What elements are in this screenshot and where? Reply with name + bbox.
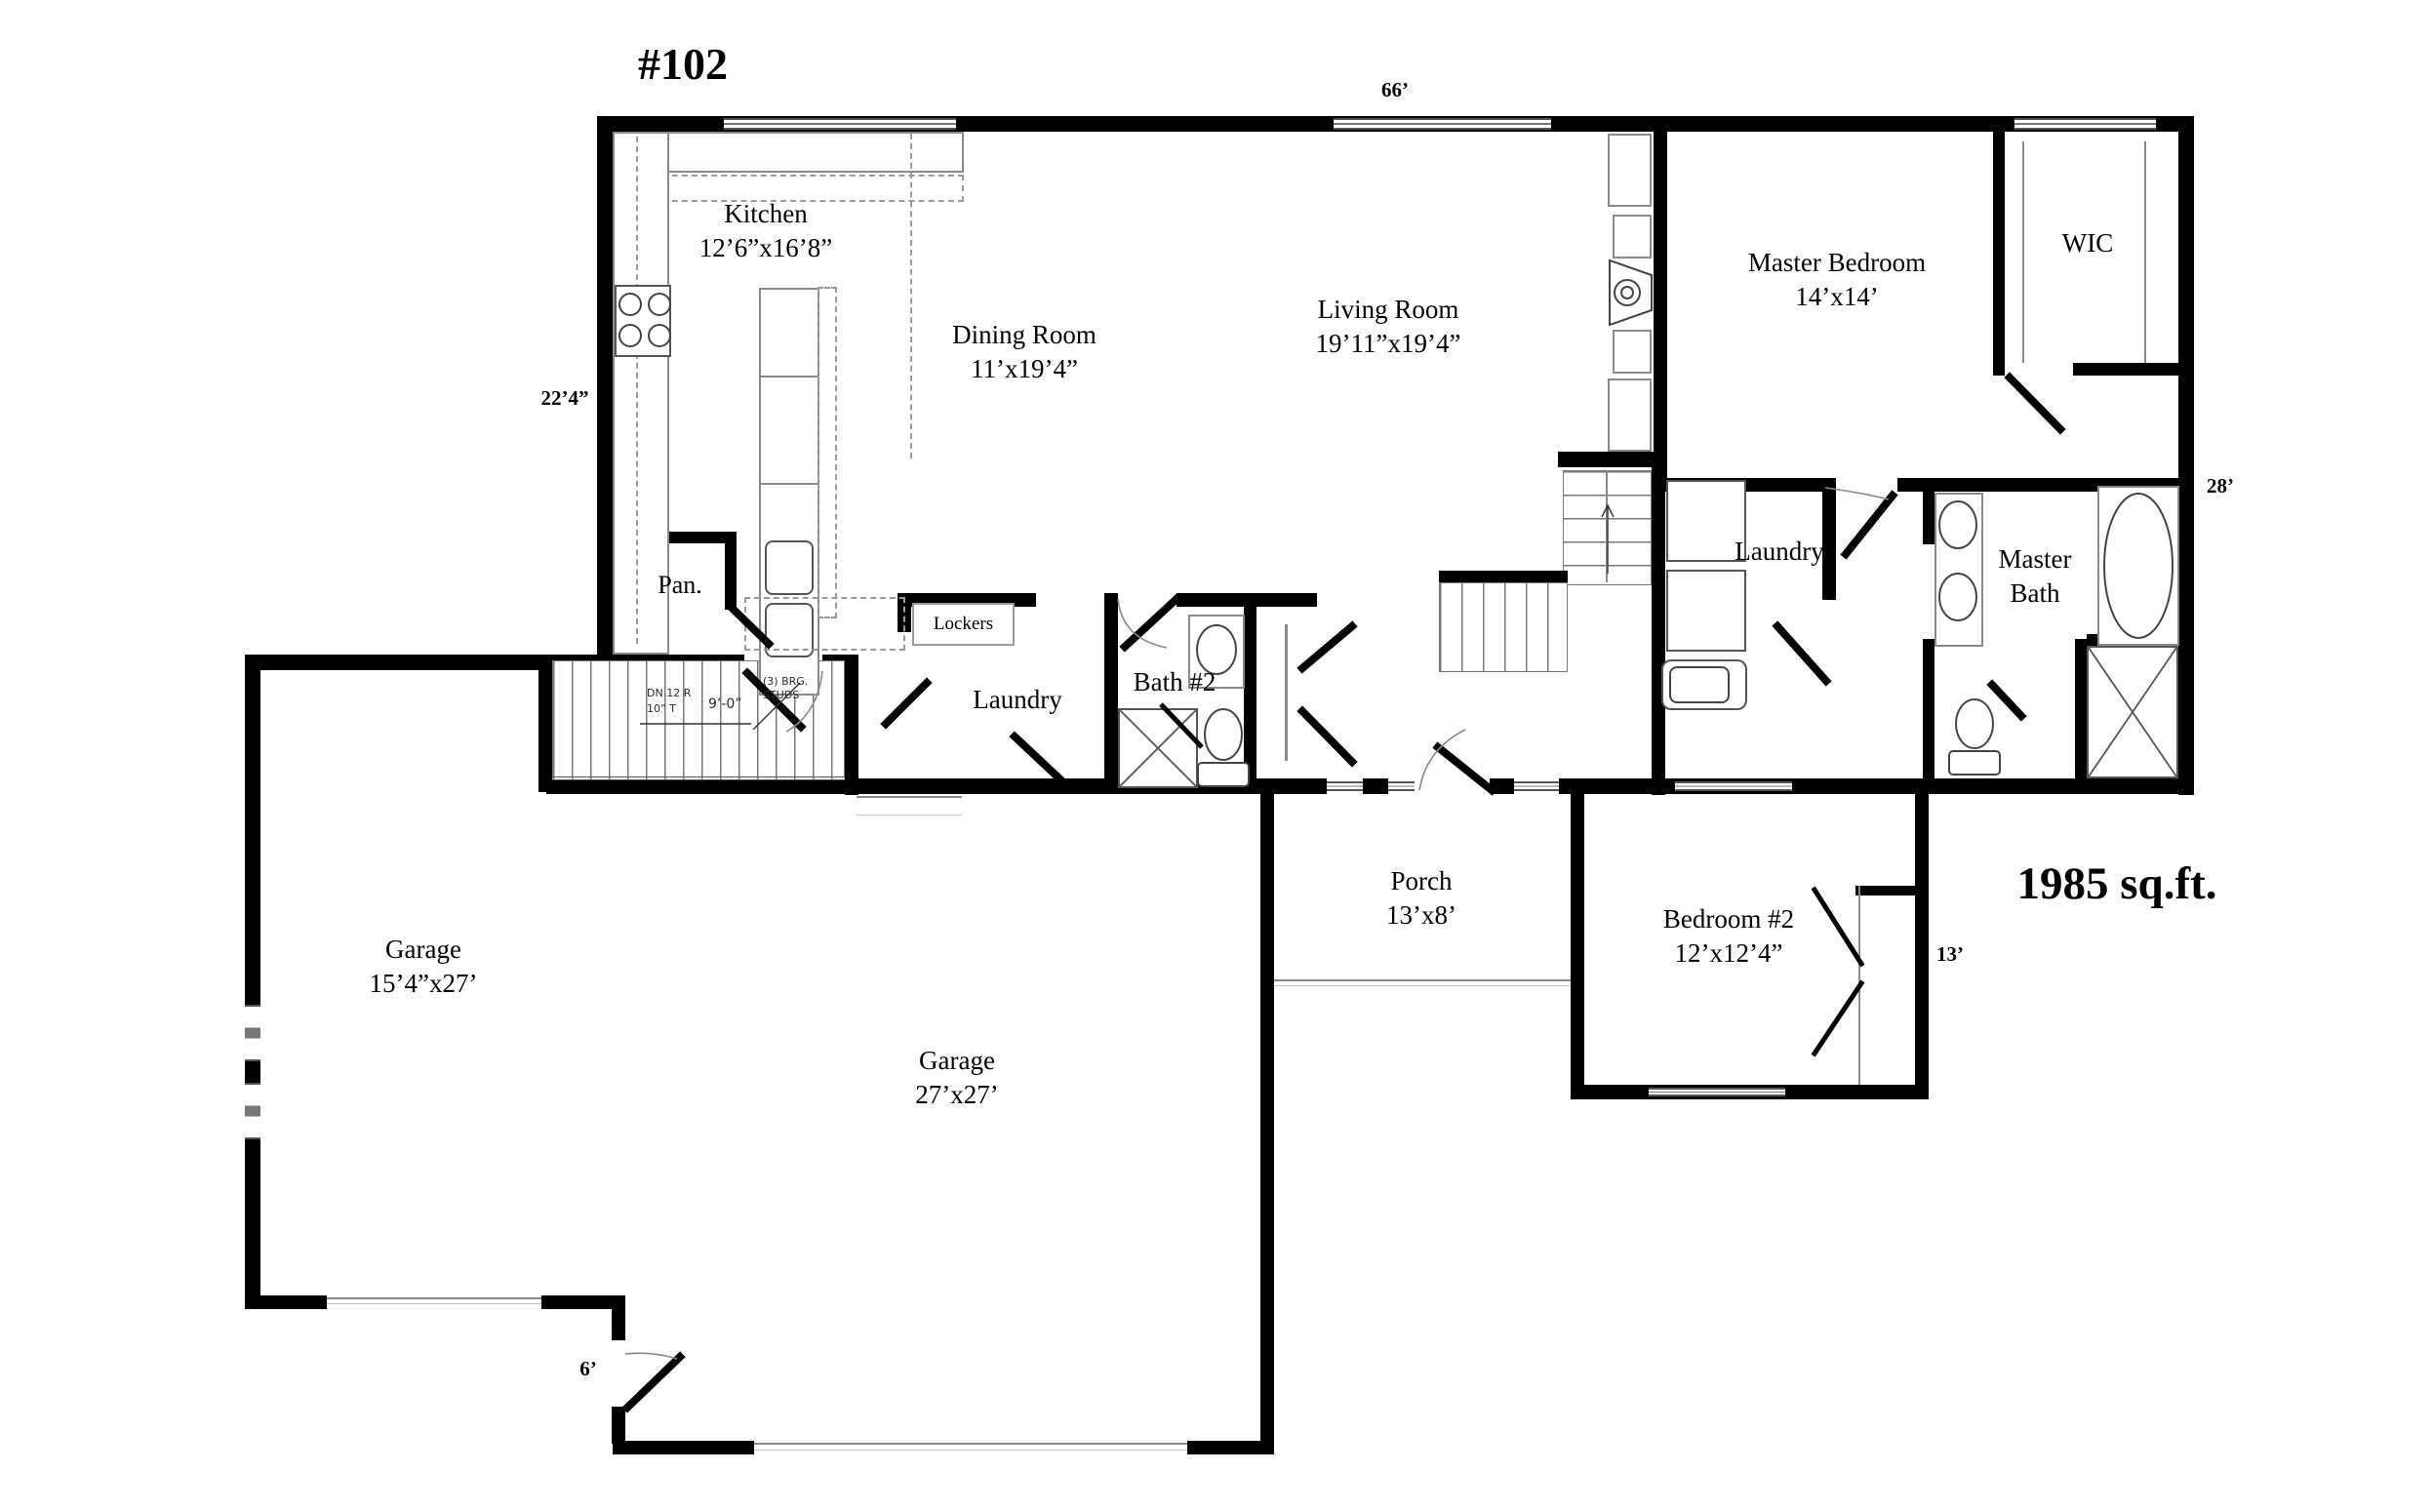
room-name: Bath: [1999, 577, 2072, 611]
wall: [1923, 491, 1934, 544]
wall: [1915, 778, 2192, 794]
builtin-cabinet: [1608, 134, 1652, 207]
room-dims: 11’x19’4”: [952, 352, 1097, 386]
wall: [1822, 478, 1836, 600]
stair-note-tread: 10” T: [647, 702, 676, 715]
wall: [2178, 116, 2194, 795]
room-name: WIC: [2062, 226, 2113, 260]
wall: [1855, 886, 1915, 895]
room-dims: 14’x14’: [1748, 280, 1926, 314]
room-name: Porch: [1386, 864, 1456, 898]
room-dims: 27’x27’: [915, 1078, 998, 1112]
room-name: Garage: [370, 933, 478, 967]
bedroom2-door-leaf: [1302, 711, 1352, 762]
stair-stringer-line: [1606, 470, 1608, 582]
wc-door-leaf: [1992, 685, 2021, 716]
shower-bath2: [1118, 708, 1198, 788]
room-dims: 12’x12’4”: [1663, 936, 1794, 971]
wall: [1244, 607, 1256, 792]
wall: [245, 655, 260, 1308]
wall: [541, 1295, 625, 1309]
shower-glass: [1120, 648, 2176, 786]
room-label-garage-main: Garage 27’x27’: [915, 1044, 998, 1112]
bath2-door-arc: [1118, 599, 1167, 648]
dim-left-depth: 22’4”: [541, 386, 589, 411]
builtin-cabinet: [1613, 330, 1652, 374]
room-label-master-bath: Master Bath: [1999, 542, 2072, 611]
garage-door-opening: [327, 1297, 541, 1304]
laundry-upper-door-leaf: [1777, 626, 1826, 681]
wall: [1923, 639, 1934, 778]
room-name: Laundry: [1735, 535, 1823, 569]
island-divider-line: [760, 483, 818, 485]
tv-niche-ring: [1621, 287, 1633, 298]
window: [245, 1005, 260, 1061]
room-name: Master Bedroom: [1748, 246, 1926, 280]
room-label-bath2: Bath #2: [1134, 665, 1216, 699]
stair-note-bearing2: STUDS: [763, 689, 799, 701]
room-name: Living Room: [1316, 293, 1461, 327]
room-label-wic: WIC: [2062, 226, 2113, 260]
vanity-master: [1934, 493, 1983, 647]
stove-icon: [615, 285, 671, 357]
wic-door-leaf: [2010, 378, 2060, 429]
island-overhang: [818, 287, 837, 618]
window: [1388, 781, 1415, 791]
shower-master: [2087, 646, 2178, 778]
closet-line: [1858, 886, 1860, 1085]
wall: [845, 658, 858, 795]
wall: [245, 1295, 327, 1309]
room-name: Lockers: [934, 614, 993, 635]
window: [724, 118, 956, 130]
room-label-master-bedroom: Master Bedroom 14’x14’: [1748, 246, 1926, 314]
service-door-leaf: [627, 1357, 680, 1408]
room-label-kitchen: Kitchen 12’6”x16’8”: [699, 197, 832, 265]
room-dims: 15’4”x27’: [370, 967, 478, 1001]
wic-shelf-line: [2022, 141, 2024, 363]
room-label-laundry-main: Laundry: [973, 683, 1061, 717]
tv-niche-ring: [1615, 280, 1640, 305]
window: [1327, 781, 1363, 791]
wall: [2073, 363, 2192, 376]
wall: [1490, 778, 1514, 794]
closet-bifold: [1815, 890, 1861, 964]
wall: [546, 778, 1327, 794]
room-label-garage-single: Garage 15’4”x27’: [370, 933, 478, 1001]
mudroom-door-leaf: [886, 683, 927, 724]
garage-door-opening: [754, 1443, 1187, 1451]
builtin-cabinet: [1608, 378, 1652, 452]
room-name: Garage: [915, 1044, 998, 1078]
front-door-arc: [1419, 730, 1465, 790]
room-label-dining: Dining Room 11’x19’4”: [952, 318, 1097, 386]
builtin-cabinet: [1613, 215, 1652, 259]
toilet-icon: [1956, 699, 1993, 748]
kitchen-sink-icon: [765, 540, 814, 595]
tv-niche-icon: [1610, 260, 1652, 325]
room-dims: 13’x8’: [1386, 898, 1456, 933]
room-dims: 12’6”x16’8”: [699, 231, 832, 265]
window: [1334, 118, 1551, 130]
hall-closet-door-leaf: [1302, 626, 1352, 668]
laundry-main-door-leaf: [1015, 736, 1061, 780]
wall: [1260, 792, 1274, 1454]
front-door-leaf: [1438, 747, 1492, 790]
dim-service-door: 6’: [579, 1357, 597, 1381]
service-door-arc: [625, 1353, 677, 1359]
bath2-door-leaf: [1125, 599, 1177, 647]
wall: [613, 1441, 754, 1454]
stair-note-width: 9’-0”: [708, 696, 742, 712]
laundry-sink-icon: [1661, 659, 1747, 710]
room-name: Laundry: [973, 683, 1061, 717]
window: [1675, 781, 1792, 791]
room-label-living: Living Room 19’11”x19’4”: [1316, 293, 1461, 361]
wall: [1993, 130, 2005, 376]
room-label-bedroom2: Bedroom #2 12’x12’4”: [1663, 902, 1794, 971]
wall: [1558, 452, 1665, 467]
room-dims: 19’11”x19’4”: [1316, 327, 1461, 361]
mudroom-bench: [744, 597, 905, 651]
plan-number: #102: [638, 35, 728, 94]
wall: [1571, 778, 1584, 1099]
wall: [1654, 130, 1667, 478]
hall-partition-line: [1285, 624, 1288, 761]
island-divider-line: [760, 376, 818, 378]
window: [1514, 781, 1559, 791]
dim-bedroom2-depth: 13’: [1936, 942, 1964, 967]
stair-note-down: DN 12 R: [647, 687, 691, 699]
room-name: Pan.: [658, 569, 702, 602]
room-name: Bath #2: [1134, 665, 1216, 699]
toilet-tank-icon: [1949, 751, 2000, 775]
room-name: Bedroom #2: [1663, 902, 1794, 936]
stair-note-bearing1: (3) BRG.: [763, 675, 808, 688]
room-label-lockers: Lockers: [912, 603, 1015, 646]
window: [1649, 1088, 1785, 1096]
wall: [612, 1407, 625, 1444]
wall: [1177, 593, 1317, 607]
toilet-icon: [1205, 709, 1242, 760]
room-label-porch: Porch 13’x8’: [1386, 864, 1456, 933]
cabinet-depth-line: [636, 137, 638, 644]
porch-edge: [1274, 979, 1571, 986]
kitchen-dining-line: [910, 134, 912, 458]
dim-right-depth: 28’: [2207, 474, 2234, 498]
wall: [1439, 571, 1568, 582]
room-name: Dining Room: [952, 318, 1097, 352]
floor-plan: #102 Kitchen 12’6”x16’8” Dining Room 11’…: [0, 0, 2433, 1512]
room-name: Master: [1999, 542, 2072, 577]
door-leaves: [627, 378, 2060, 1408]
entry-step: [857, 796, 962, 816]
wall: [612, 1309, 625, 1340]
closet-bifold: [1815, 983, 1861, 1054]
wall: [597, 116, 613, 668]
master-bedroom-door-leaf: [1846, 496, 1893, 554]
wall: [1915, 778, 1929, 1099]
dryer-icon: [1666, 570, 1746, 652]
room-label-laundry-upper: Laundry: [1735, 535, 1823, 569]
window: [2014, 118, 2156, 130]
wall: [725, 532, 737, 610]
wall: [2075, 639, 2087, 780]
total-area: 1985 sq.ft.: [2017, 855, 2217, 914]
window: [245, 1083, 260, 1139]
wic-shelf-line: [2144, 141, 2146, 363]
tub-deck: [2097, 486, 2179, 646]
wall: [1363, 778, 1388, 794]
dim-top-width: 66’: [1381, 78, 1409, 102]
wall: [1993, 363, 2005, 376]
wall: [1104, 593, 1118, 792]
wall: [1652, 465, 1665, 795]
room-name: Kitchen: [699, 197, 832, 231]
room-label-pantry: Pan.: [658, 569, 702, 602]
wall: [538, 660, 552, 792]
stairs-lower-run: [1439, 582, 1568, 672]
